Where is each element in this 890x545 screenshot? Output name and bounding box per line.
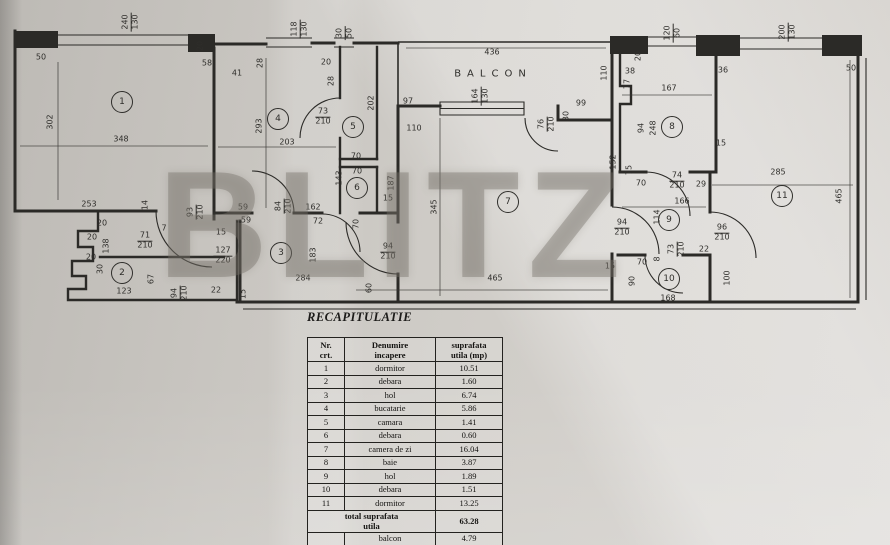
total-utila-value: 63.28 — [436, 510, 503, 532]
dim-label: 70 — [352, 219, 361, 229]
dim-label: 183 — [309, 247, 318, 262]
recap-cell-name: baie — [345, 456, 436, 469]
door-size-label: 240130 — [122, 12, 141, 31]
recap-table: Nr. crt. Denumire incapere suprafata uti… — [307, 337, 503, 545]
door-size-label: 118130 — [291, 19, 310, 38]
dim-label: 138 — [102, 238, 111, 253]
recap-cell-nr: 9 — [308, 470, 345, 483]
dim-label: 59 — [241, 216, 251, 225]
dim-label: 70 — [351, 152, 361, 161]
door-size-label: 74210 — [669, 172, 684, 191]
recap-cell-name: debara — [345, 375, 436, 388]
room-number-marker: 8 — [661, 116, 683, 138]
dim-label: 59 — [238, 203, 248, 212]
recap-row: 6debara0.60 — [308, 429, 503, 442]
room-number-marker: 4 — [267, 108, 289, 130]
dim-label: 7 — [161, 224, 166, 233]
dim-label: 90 — [628, 276, 637, 286]
recap-cell-area: 3.87 — [436, 456, 503, 469]
dim-label: 15 — [383, 194, 393, 203]
recap-row: 11dormitor13.25 — [308, 497, 503, 510]
recap-cell-nr: 5 — [308, 416, 345, 429]
dim-label: 38 — [625, 67, 635, 76]
dim-label: 167 — [661, 84, 676, 93]
dim-label: 77 — [623, 79, 632, 89]
dim-label: 30 — [96, 264, 105, 274]
recap-cell-nr: 6 — [308, 429, 345, 442]
dim-label: 284 — [295, 274, 310, 283]
recap-cell-area: 10.51 — [436, 362, 503, 375]
recap-cell-nr: 4 — [308, 402, 345, 415]
total-utila-row: total suprafata utila 63.28 — [308, 510, 503, 532]
dim-label: 94 — [637, 123, 646, 133]
recap-title: RECAPITULATIE — [307, 310, 412, 325]
recap-cell-area: 0.60 — [436, 429, 503, 442]
recap-cell-name: hol — [345, 470, 436, 483]
recap-cell-nr: 10 — [308, 483, 345, 496]
dim-label: 50 — [36, 53, 46, 62]
dim-label: 285 — [770, 168, 785, 177]
dim-label: 58 — [202, 59, 212, 68]
dim-label: 99 — [576, 99, 586, 108]
recap-cell-area: 1.41 — [436, 416, 503, 429]
dim-label: 100 — [723, 270, 732, 285]
recap-row: 5camara1.41 — [308, 416, 503, 429]
dim-label: 70 — [637, 258, 647, 267]
recap-cell-name: debara — [345, 483, 436, 496]
dim-label: 72 — [313, 217, 323, 226]
total-utila-label: total suprafata utila — [308, 510, 436, 532]
door-size-label: 96210 — [714, 224, 729, 243]
recap-cell-name: camara — [345, 416, 436, 429]
door-size-label: 3050 — [336, 26, 355, 40]
dim-label: 14 — [141, 200, 150, 210]
dim-label: 345 — [430, 199, 439, 214]
door-size-label: 200130 — [779, 22, 798, 41]
dim-label: 97 — [403, 97, 413, 106]
dim-label: 162 — [305, 203, 320, 212]
dim-label: 41 — [232, 69, 242, 78]
dim-label: 60 — [365, 283, 374, 293]
recap-cell-area: 6.74 — [436, 389, 503, 402]
dim-label: 302 — [46, 114, 55, 129]
recap-row: 8baie3.87 — [308, 456, 503, 469]
recap-row: 1dormitor10.51 — [308, 362, 503, 375]
balcon-row: balcon 4.79 — [308, 532, 503, 545]
recap-cell-nr: 1 — [308, 362, 345, 375]
dim-label: 152 — [609, 154, 618, 169]
dim-label: 166 — [674, 197, 689, 206]
room-number-marker: 10 — [658, 268, 680, 290]
recap-cell-nr: 2 — [308, 375, 345, 388]
dim-label: 15 — [716, 139, 726, 148]
col-header-nr: Nr. crt. — [308, 338, 345, 362]
recap-cell-nr: 7 — [308, 443, 345, 456]
dim-label: 20 — [196, 41, 205, 51]
balcon-label: balcon — [345, 532, 436, 545]
recap-cell-name: hol — [345, 389, 436, 402]
col-header-area: suprafata utila (mp) — [436, 338, 503, 362]
recap-cell-area: 1.89 — [436, 470, 503, 483]
dim-label: 110 — [406, 124, 421, 133]
dim-label: 30 — [562, 111, 571, 121]
dim-label: 168 — [660, 294, 675, 303]
door-size-label: 94210 — [380, 243, 395, 262]
dim-label: 28 — [256, 58, 265, 68]
door-size-label: 73210 — [668, 241, 687, 256]
dim-label: 70 — [352, 167, 362, 176]
door-size-label: 76210 — [538, 116, 557, 131]
door-size-label: 71210 — [137, 232, 152, 251]
recap-cell-name: debara — [345, 429, 436, 442]
door-size-label: 94210 — [171, 285, 190, 300]
dim-label: 15 — [216, 228, 226, 237]
dim-label: 8 — [653, 256, 662, 261]
recap-cell-name: camera de zi — [345, 443, 436, 456]
dim-label: 20 — [87, 233, 97, 242]
dim-label: 15 — [605, 262, 615, 271]
dim-label: 50 — [846, 64, 856, 73]
dim-label: 348 — [113, 135, 128, 144]
dim-label: 20 — [634, 51, 643, 61]
room-number-marker: 2 — [111, 262, 133, 284]
dim-label: 67 — [147, 274, 156, 284]
recap-row: 2debara1.60 — [308, 375, 503, 388]
dim-label: 143 — [335, 170, 344, 185]
dim-label: 15 — [239, 289, 248, 299]
recap-row: 9hol1.89 — [308, 470, 503, 483]
dim-label: 36 — [718, 66, 728, 75]
balcon-empty-cell — [308, 532, 345, 545]
door-size-label: 164130 — [472, 86, 491, 105]
dim-label: 70 — [636, 179, 646, 188]
dim-label: 75 — [625, 165, 634, 175]
room-number-marker: 9 — [658, 209, 680, 231]
recap-cell-area: 16.04 — [436, 443, 503, 456]
recap-cell-name: bucatarie — [345, 402, 436, 415]
recap-cell-area: 5.86 — [436, 402, 503, 415]
dim-label: 465 — [835, 188, 844, 203]
recap-header-row: Nr. crt. Denumire incapere suprafata uti… — [308, 338, 503, 362]
dim-label: 465 — [487, 274, 502, 283]
dim-label: 293 — [255, 118, 264, 133]
room-number-marker: 11 — [771, 185, 793, 207]
door-size-label: 12060 — [664, 23, 683, 42]
dim-label: 187 — [387, 175, 396, 190]
balcon-value: 4.79 — [436, 532, 503, 545]
col-header-name: Denumire incapere — [345, 338, 436, 362]
recap-row: 7camera de zi16.04 — [308, 443, 503, 456]
room-number-marker: 6 — [346, 177, 368, 199]
recap-cell-nr: 8 — [308, 456, 345, 469]
dim-label: 22 — [699, 245, 709, 254]
dim-label: 123 — [116, 287, 131, 296]
recap-row: 3hol6.74 — [308, 389, 503, 402]
recap-row: 4bucatarie5.86 — [308, 402, 503, 415]
dim-label: 22 — [211, 286, 221, 295]
dim-label: 20 — [86, 253, 96, 262]
dim-label: 202 — [367, 95, 376, 110]
floorplan-document: 5020583023482531472020201383012367595915… — [0, 0, 890, 545]
dim-label: 253 — [81, 200, 96, 209]
dim-label: 28 — [327, 76, 336, 86]
dim-label: 110 — [600, 65, 609, 80]
recap-row: 10debara1.51 — [308, 483, 503, 496]
balcony-label: BALCON — [454, 69, 532, 80]
room-number-marker: 3 — [270, 242, 292, 264]
door-size-label: 94210 — [614, 219, 629, 238]
room-number-marker: 1 — [111, 91, 133, 113]
dim-label: 248 — [649, 120, 658, 135]
room-number-marker: 7 — [497, 191, 519, 213]
recap-cell-nr: 3 — [308, 389, 345, 402]
dim-label: 203 — [279, 138, 294, 147]
door-size-label: 84210 — [275, 198, 294, 213]
recap-cell-name: dormitor — [345, 497, 436, 510]
door-size-label: 93210 — [187, 204, 206, 219]
door-size-label: 127220 — [213, 247, 232, 266]
dim-label: 20 — [321, 58, 331, 67]
recap-cell-name: dormitor — [345, 362, 436, 375]
recap-cell-area: 13.25 — [436, 497, 503, 510]
recap-cell-area: 1.60 — [436, 375, 503, 388]
dim-label: 29 — [696, 180, 706, 189]
door-size-label: 73210 — [315, 108, 330, 127]
room-number-marker: 5 — [342, 116, 364, 138]
recap-cell-area: 1.51 — [436, 483, 503, 496]
dim-label: 20 — [97, 219, 107, 228]
recap-cell-nr: 11 — [308, 497, 345, 510]
dim-label: 436 — [484, 48, 499, 57]
